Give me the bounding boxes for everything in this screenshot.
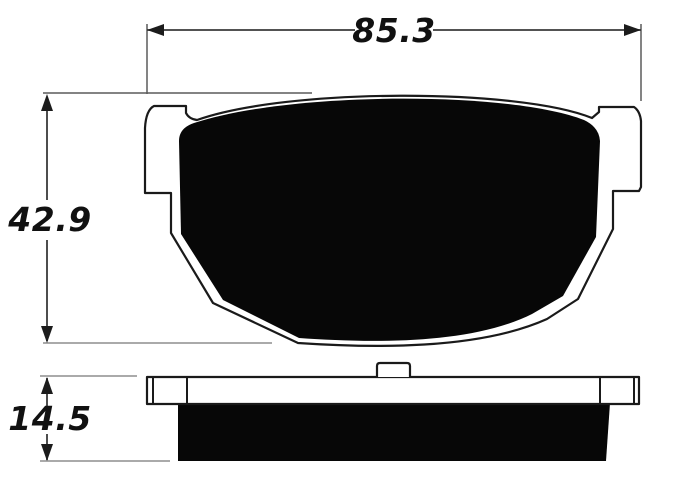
- width-dimension-label: 85.3: [352, 11, 435, 50]
- arrow-left-icon: [147, 24, 164, 36]
- backing-plate-edge: [147, 377, 639, 404]
- arrow-right-icon: [624, 24, 641, 36]
- friction-pad-edge: [178, 403, 610, 461]
- brake-pad-technical-drawing: 85.3 42.9 14.5: [0, 0, 674, 478]
- arrow-down-icon: [41, 444, 53, 461]
- arrow-down-icon: [41, 326, 53, 343]
- thickness-dimension: 14.5: [8, 376, 170, 461]
- arrow-up-icon: [41, 94, 53, 111]
- locating-tab: [377, 363, 410, 377]
- side-view: [147, 363, 639, 461]
- friction-pad-face: [179, 99, 600, 341]
- arrow-up-icon: [41, 377, 53, 394]
- drawing-svg: 85.3 42.9 14.5: [0, 0, 674, 478]
- height-dimension-label: 42.9: [7, 200, 91, 239]
- width-dimension: 85.3: [147, 11, 641, 101]
- front-view: [145, 96, 641, 346]
- thickness-dimension-label: 14.5: [8, 399, 91, 438]
